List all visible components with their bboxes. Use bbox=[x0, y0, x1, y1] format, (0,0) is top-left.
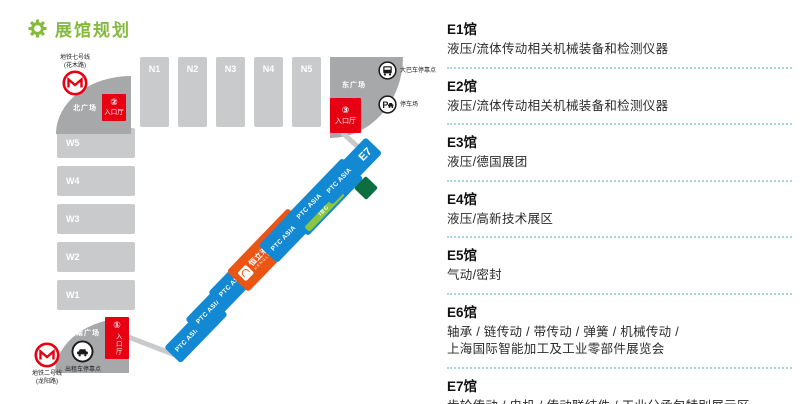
legend-e2-title: E2馆 bbox=[447, 75, 792, 95]
hall-e7: PTC ASIA E7 bbox=[316, 137, 383, 205]
legend-e7-desc: 齿轮传动 / 电机 / 传动联结件 / 工业分承包特别展示区 bbox=[447, 398, 792, 404]
east-plaza-label: 东广场 bbox=[342, 80, 366, 90]
south-plaza-label: 南广场 bbox=[76, 328, 100, 338]
legend-e5-title: E5馆 bbox=[447, 244, 792, 264]
taxi-stop-label: 出租车停靠点 bbox=[59, 366, 107, 374]
legend-e5-desc: 气动/密封 bbox=[447, 267, 792, 285]
metro-line7-label: 地铁七号线 (花木路) bbox=[50, 54, 100, 70]
legend-entry-e4: E4馆 液压/高新技术展区 bbox=[447, 182, 792, 239]
legend-entry-e5: E5馆 气动/密封 bbox=[447, 238, 792, 295]
entrance-hall-3: ③ 入口厅 bbox=[330, 98, 361, 133]
floorplan-page: 展馆规划 N1 N2 N3 N4 N5 W5 W4 W3 W2 W1 北广场 东… bbox=[0, 0, 800, 404]
legend-entry-e1: E1馆 液压/流体传动相关机械装备和检测仪器 bbox=[447, 12, 792, 69]
hall-e7-id: E7 bbox=[356, 145, 374, 163]
hall-w4: W4 bbox=[57, 166, 135, 196]
legend-e1-desc: 液压/流体传动相关机械装备和检测仪器 bbox=[447, 41, 792, 59]
entrance-3-label: 入口厅 bbox=[335, 117, 356, 126]
legend-e6-desc: 轴承 / 链传动 / 带传动 / 弹簧 / 机械传动 / 上海国际智能加工及工业… bbox=[447, 324, 792, 359]
entrance-hall-1: ① 入口厅 bbox=[105, 317, 129, 359]
legend-entry-e7: E7馆 齿轮传动 / 电机 / 传动联结件 / 工业分承包特别展示区 bbox=[447, 369, 792, 404]
entrance-1-label: 入口厅 bbox=[113, 333, 121, 356]
legend-entry-e2: E2馆 液压/流体传动相关机械装备和检测仪器 bbox=[447, 69, 792, 126]
legend-e4-title: E4馆 bbox=[447, 188, 792, 208]
ptc-asia-label: PTC ASIA bbox=[269, 224, 297, 252]
hall-n4: N4 bbox=[254, 57, 283, 127]
hall-n2: N2 bbox=[178, 57, 207, 127]
svg-text:P: P bbox=[382, 100, 388, 110]
north-plaza-label: 北广场 bbox=[73, 103, 97, 113]
legend-e4-desc: 液压/高新技术展区 bbox=[447, 211, 792, 229]
bus-icon bbox=[378, 61, 397, 85]
metro-icon bbox=[34, 342, 60, 373]
hall-w1: W1 bbox=[57, 280, 135, 310]
metro-icon bbox=[62, 70, 88, 101]
entrance-2-label: 入口厅 bbox=[104, 109, 124, 117]
entrance-hall-2: ② 入口厅 bbox=[102, 94, 126, 121]
legend-e6-title: E6馆 bbox=[447, 301, 792, 321]
hall-legend: E1馆 液压/流体传动相关机械装备和检测仪器 E2馆 液压/流体传动相关机械装备… bbox=[447, 12, 792, 404]
entrance-1-number: ① bbox=[113, 320, 121, 332]
parking-icon: P bbox=[378, 95, 397, 119]
taxi-icon bbox=[71, 340, 94, 368]
hall-w2: W2 bbox=[57, 242, 135, 272]
legend-entry-e6: E6馆 轴承 / 链传动 / 带传动 / 弹簧 / 机械传动 / 上海国际智能加… bbox=[447, 295, 792, 369]
hall-w3: W3 bbox=[57, 204, 135, 234]
hall-n1: N1 bbox=[140, 57, 169, 127]
parking-label: 停车场 bbox=[400, 101, 418, 109]
gear-icon bbox=[28, 19, 47, 38]
entrance-3-number: ③ bbox=[342, 105, 350, 117]
hall-n3: N3 bbox=[216, 57, 245, 127]
entrance-2-number: ② bbox=[110, 97, 118, 109]
page-title: 展馆规划 bbox=[28, 16, 131, 41]
page-title-text: 展馆规划 bbox=[55, 16, 131, 41]
legend-entry-e3: E3馆 液压/德国展团 bbox=[447, 125, 792, 182]
legend-e7-title: E7馆 bbox=[447, 375, 792, 395]
legend-e3-title: E3馆 bbox=[447, 131, 792, 151]
legend-e1-title: E1馆 bbox=[447, 18, 792, 38]
legend-e2-desc: 液压/流体传动相关机械装备和检测仪器 bbox=[447, 98, 792, 116]
bus-stop-label: 大巴车停靠点 bbox=[400, 67, 436, 75]
legend-e3-desc: 液压/德国展团 bbox=[447, 154, 792, 172]
hall-n5: N5 bbox=[292, 57, 321, 127]
